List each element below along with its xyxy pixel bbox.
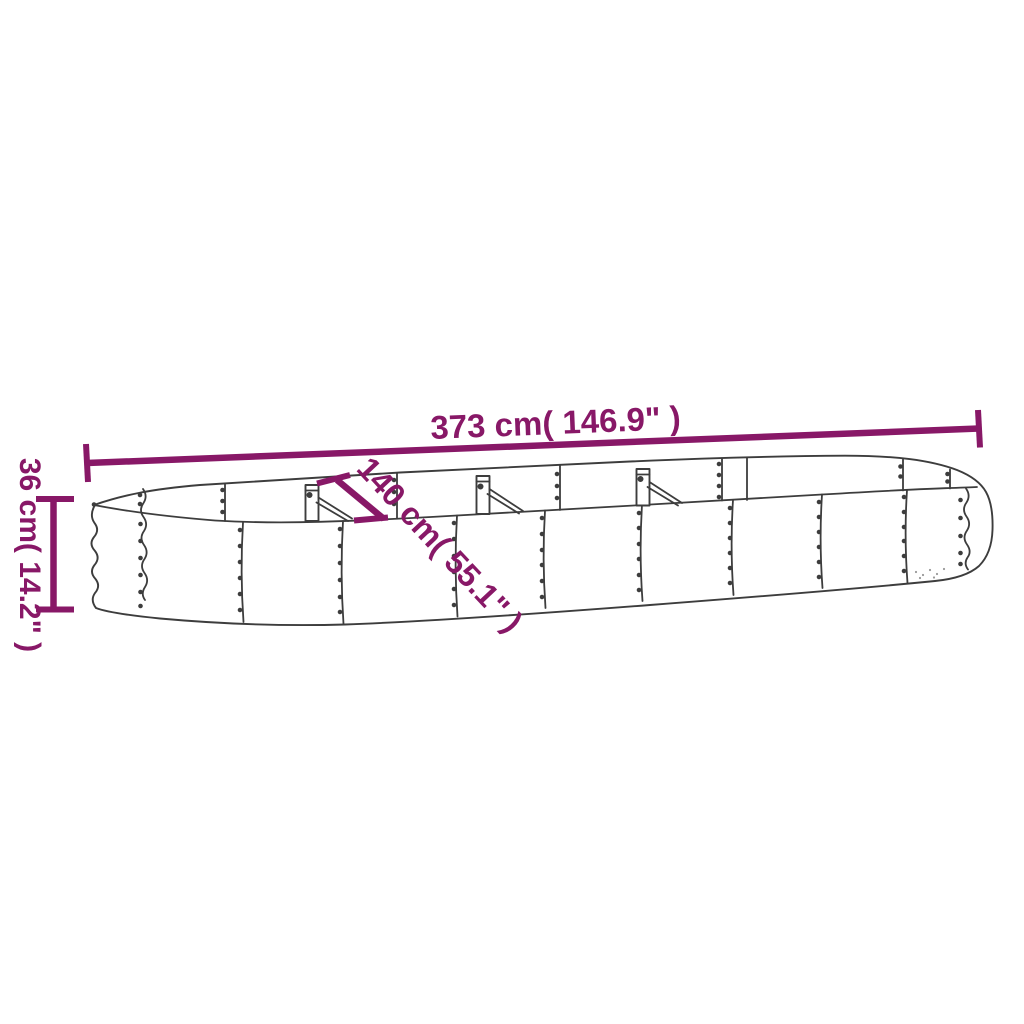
width-dimension-cap-bottom — [354, 518, 388, 521]
length-dimension-cap-right — [978, 410, 980, 448]
height-dimension-label: 36 cm( 14.2" ) — [13, 458, 46, 652]
dimension-diagram: 373 cm( 146.9" ) 36 cm( 14.2" ) 140 cm( … — [0, 0, 1024, 1024]
raised-bed-drawing — [91, 456, 992, 625]
diagram-canvas: 373 cm( 146.9" ) 36 cm( 14.2" ) 140 cm( … — [0, 0, 1024, 1024]
length-dimension-cap-left — [86, 444, 88, 482]
height-dimension: 36 cm( 14.2" ) — [13, 458, 74, 652]
bed-outline — [91, 456, 992, 625]
